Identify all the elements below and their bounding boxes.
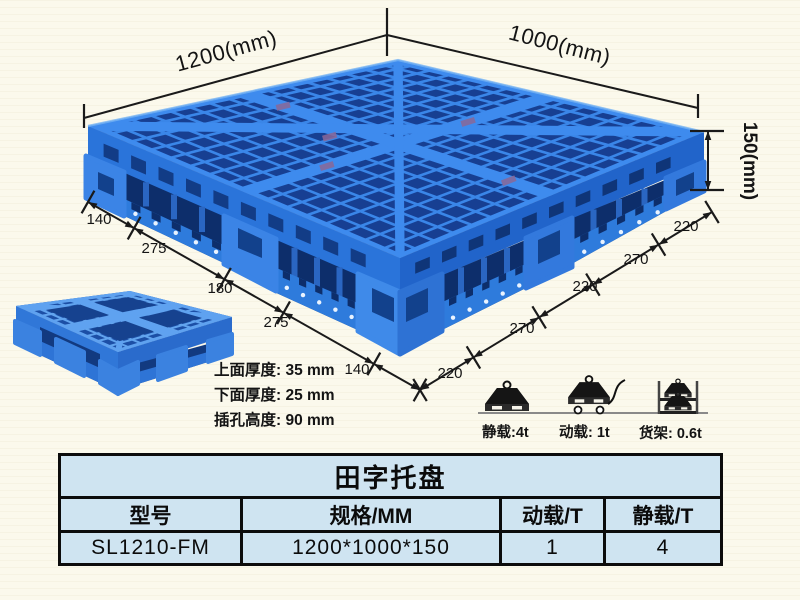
dim-right-4: 220 bbox=[673, 218, 698, 235]
dim-left-1: 275 bbox=[141, 240, 166, 257]
spec-table-data-row: SL1210-FM 1200*1000*150 1 4 bbox=[60, 532, 722, 565]
cell-model: SL1210-FM bbox=[60, 532, 242, 565]
col-header-static-load: 静载/T bbox=[605, 498, 722, 532]
dim-right-2: 220 bbox=[572, 278, 597, 295]
cell-static-load: 4 bbox=[605, 532, 722, 565]
pallet-spec-sheet: 1200(mm) 1000(mm) 150(mm) 140 275 180 27… bbox=[0, 0, 800, 600]
static-load-label: 静载:4t bbox=[482, 423, 529, 441]
dim-left-3: 275 bbox=[263, 314, 288, 331]
dim-right-1: 270 bbox=[509, 320, 534, 337]
cell-dynamic-load: 1 bbox=[501, 532, 605, 565]
col-header-dynamic-load: 动载/T bbox=[501, 498, 605, 532]
spec-table-header-row: 型号 规格/MM 动载/T 静载/T bbox=[60, 498, 722, 532]
dim-left-0: 140 bbox=[86, 211, 111, 228]
cell-size: 1200*1000*150 bbox=[242, 532, 501, 565]
annotation-fork-height: 插孔高度: 90 mm bbox=[214, 410, 335, 429]
annotation-bottom-thickness: 下面厚度: 25 mm bbox=[214, 385, 335, 404]
col-header-model: 型号 bbox=[60, 498, 242, 532]
dim-label-150mm: 150(mm) bbox=[739, 122, 760, 200]
dim-left-4: 140 bbox=[344, 361, 369, 378]
spec-table-title-row: 田字托盘 bbox=[60, 455, 722, 498]
dim-label-1000mm: 1000(mm) bbox=[506, 20, 613, 70]
dim-left-2: 180 bbox=[207, 280, 232, 297]
dim-right-0: 220 bbox=[437, 365, 462, 382]
dim-right-3: 270 bbox=[623, 251, 648, 268]
annotation-top-thickness: 上面厚度: 35 mm bbox=[214, 360, 335, 379]
col-header-size: 规格/MM bbox=[242, 498, 501, 532]
pallet-isometric-illustration bbox=[15, 8, 724, 414]
spec-table: 田字托盘 型号 规格/MM 动载/T 静载/T SL1210-FM 1200*1… bbox=[58, 453, 723, 566]
rack-load-label: 货架: 0.6t bbox=[639, 424, 702, 442]
spec-table-title: 田字托盘 bbox=[60, 455, 722, 498]
dynamic-load-label: 动载: 1t bbox=[559, 423, 610, 441]
